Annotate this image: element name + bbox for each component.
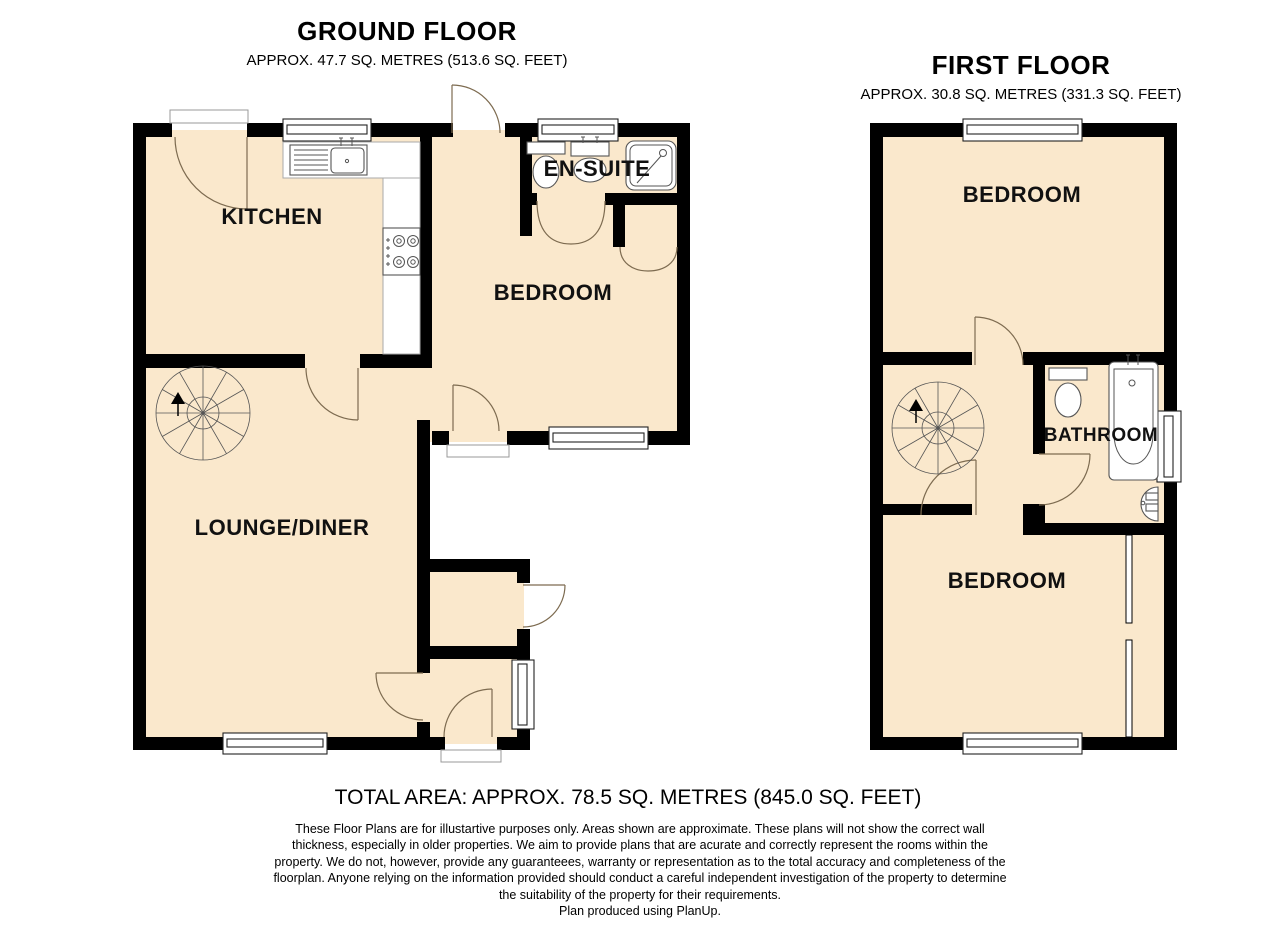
lounge-label: LOUNGE/DINER	[195, 515, 370, 540]
disclaimer-line: These Floor Plans are for illustartive p…	[0, 821, 1280, 837]
bathtub	[1109, 355, 1158, 480]
hall-entrance-door	[452, 85, 500, 133]
bedroom-gf-label: BEDROOM	[494, 280, 612, 305]
bedroom-front-floor	[877, 130, 1171, 362]
disclaimer-line: floorplan. Anyone relying on the informa…	[0, 870, 1280, 886]
ensuite-label: EN-SUITE	[544, 156, 651, 181]
disclaimer-line: thickness, especially in older propertie…	[0, 837, 1280, 853]
bathroom-label: BATHROOM	[1044, 425, 1158, 446]
first-floor-plan: BEDROOM BATHROOM BEDROOM	[870, 119, 1181, 754]
floorplan-page: GROUND FLOOR APPROX. 47.7 SQ. METRES (51…	[0, 0, 1280, 931]
cupboard-partition	[1126, 535, 1132, 623]
bedroom-front-window	[963, 119, 1082, 141]
disclaimer-line: the suitability of the property for thei…	[0, 887, 1280, 903]
kitchen-door-step	[170, 110, 248, 123]
ground-floor-plan: KITCHEN EN-SUITE BEDROOM LOUNGE/DINER	[133, 85, 690, 762]
lounge-floor	[139, 358, 430, 744]
total-area: TOTAL AREA: APPROX. 78.5 SQ. METRES (845…	[0, 786, 1256, 810]
landing-floor	[877, 358, 1037, 511]
plan-credit: Plan produced using PlanUp.	[0, 903, 1280, 919]
bedroom-door-step	[447, 445, 509, 457]
store-window	[512, 660, 534, 729]
side-store-door	[523, 585, 565, 627]
bedroom-back-label: BEDROOM	[948, 568, 1066, 593]
cupboard-partition-lower	[1126, 640, 1132, 737]
kitchen-window	[283, 119, 371, 141]
bedroom-gf-window	[549, 427, 648, 449]
bedroom-back-window	[963, 733, 1082, 754]
bathroom-window	[1157, 411, 1181, 482]
disclaimer-line: property. We do not, however, provide an…	[0, 854, 1280, 870]
bedroom-front-label: BEDROOM	[963, 182, 1081, 207]
disclaimer: These Floor Plans are for illustartive p…	[0, 821, 1280, 919]
kitchen-hob	[383, 228, 420, 275]
lounge-window	[223, 733, 327, 754]
rear-door-step	[441, 750, 501, 762]
kitchen-label: KITCHEN	[221, 204, 322, 229]
ensuite-window	[538, 119, 618, 141]
